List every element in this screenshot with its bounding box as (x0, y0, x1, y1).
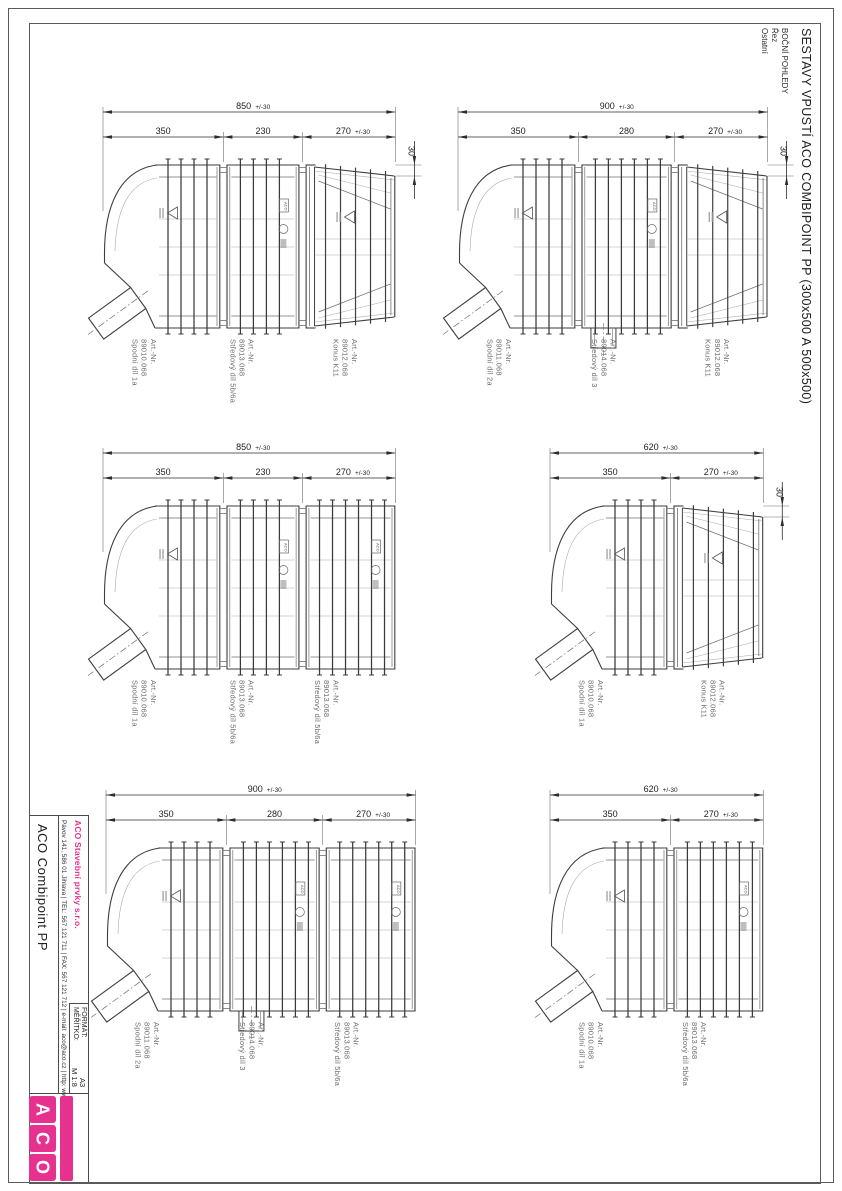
part-name: Středový díl 5b/6a (313, 680, 322, 815)
dimension-tolerance: +/-30 (619, 104, 634, 111)
dim-arrow (759, 135, 768, 138)
aco-mark-text: ACO (744, 885, 749, 894)
assembly-1-drawing: 850+/-30350230270+/-30ACO30 (73, 95, 429, 351)
assembly-5-drawing: 900+/-30350280270+/-30ACOACO (76, 778, 450, 1034)
product-title: ACO Combipoint PP (35, 824, 50, 951)
part-label: Art.-Nr.89010.068Spodní díl 1a (577, 680, 605, 815)
dim-arrow (458, 110, 467, 113)
dim-arrow (214, 135, 223, 138)
part-name: Spodní díl 1a (130, 680, 139, 815)
dimension-value: 350 (156, 126, 171, 136)
art-nr-caption: Art.-Nr. (722, 339, 731, 474)
quality-mark-icon (371, 566, 380, 575)
dimension-tolerance: +/-30 (255, 104, 270, 111)
step-dimension-value: 30 (779, 146, 789, 156)
microtext-bar (336, 212, 337, 222)
art-nr-caption: Art.-Nr. (596, 680, 605, 815)
view-labels: BOČNÍ POHLEDY Řez Ostatní (759, 28, 789, 94)
step-dimension-value: 30 (774, 487, 784, 497)
art-nr-value: 89010.068 (586, 680, 595, 815)
dim-arrow (226, 818, 235, 821)
company-name: ACO Stavební prvky s.r.o. (73, 820, 83, 929)
dim-arrow (386, 110, 395, 113)
dim-arrow (303, 135, 312, 138)
dim-arrow (314, 818, 323, 821)
dim-arrow (781, 497, 784, 506)
microtext-bar (162, 208, 163, 218)
part-name: Středový díl 5b/6a (681, 1022, 690, 1157)
dim-arrow (670, 476, 679, 479)
art-nr-caption: Art.-Nr. (246, 339, 255, 474)
part-label: Art.-Nr.89013.068Středový díl 5b/6a (313, 680, 341, 815)
aco-mark-text: ACO (283, 543, 288, 552)
dim-arrow (103, 135, 112, 138)
dim-arrow (413, 156, 416, 165)
dim-arrow (661, 818, 670, 821)
art-nr-caption: Art.-Nr. (331, 680, 340, 815)
art-nr-value: 89014.068 (247, 1022, 256, 1157)
microtext-bar (514, 208, 515, 218)
dim-arrow (754, 451, 763, 454)
dim-arrow (217, 818, 226, 821)
microtext-bar (165, 891, 166, 901)
art-nr-value: 89014.068 (599, 339, 608, 474)
dim-arrow (223, 476, 232, 479)
dimension-value: 350 (511, 126, 526, 136)
recycling-triangle-icon (167, 548, 177, 560)
part-label: Art.-Nr.89013.068Středový díl 5b/6a (681, 1022, 709, 1157)
dim-arrow (407, 818, 416, 821)
art-nr-caption: Art.-Nr. (699, 1022, 708, 1157)
scale-cell: MĚŘÍTKO: M 1:8 (70, 1007, 79, 1087)
dim-arrow (754, 793, 763, 796)
dimension-value: 620 (644, 442, 659, 452)
dim-arrow (550, 476, 559, 479)
art-nr-caption: Art.-Nr. (596, 1022, 605, 1157)
art-nr-caption: Art.-Nr. (149, 680, 158, 815)
aco-logo-letter: O (34, 1160, 52, 1174)
quality-mark-icon (279, 566, 288, 575)
aco-logo-block: A (29, 1096, 56, 1123)
microtext-bar (704, 553, 705, 563)
microtext-bar (159, 208, 160, 218)
dim-arrow (103, 476, 112, 479)
code-mark (280, 239, 286, 248)
aco-mark-text: ACO (300, 885, 305, 894)
dimension-tolerance: +/-30 (255, 445, 270, 452)
art-nr-value: 89013.068 (237, 339, 246, 474)
outlet-stub (92, 971, 149, 1023)
format-value: A3 (78, 1078, 87, 1087)
art-nr-value: 89013.068 (342, 1022, 351, 1157)
dim-arrow (386, 476, 395, 479)
part-label: Art.-Nr.89010.068Spodní díl 1a (130, 339, 158, 474)
assembly-2-drawing: 900+/-30350280270+/-30ACO30 (428, 95, 802, 351)
aco-mark-text: ACO (283, 202, 288, 211)
dim-arrow (578, 135, 587, 138)
recycling-triangle-icon (712, 552, 722, 564)
format-label: FORMÁT: (78, 1007, 87, 1038)
part-name: Spodní díl 1a (130, 339, 139, 474)
aco-logo-block: O (29, 1154, 56, 1181)
dimension-value: 900 (600, 101, 615, 111)
part-name: Spodní díl 1a (577, 680, 586, 815)
art-nr-value: 89012.068 (340, 339, 349, 474)
recycling-triangle-icon (614, 890, 624, 902)
part-name: Středový díl 5b/6a (333, 1022, 342, 1157)
view-label-other: Ostatní (759, 28, 769, 94)
dim-arrow (759, 110, 768, 113)
dim-arrow (323, 818, 332, 821)
dimension-value: 230 (255, 126, 270, 136)
outlet-stub (536, 629, 593, 681)
art-nr-value: 89011.068 (494, 339, 503, 474)
part-label: Art.-Nr.89013.068Středový díl 5b/6a (333, 1022, 361, 1157)
aco-mark-text: ACO (376, 543, 381, 552)
art-nr-value: 89013.068 (322, 680, 331, 815)
dim-arrow (785, 176, 788, 185)
art-nr-caption: Art.-Nr. (350, 339, 359, 474)
dimension-value: 270 (336, 126, 351, 136)
assembly-6-drawing: 620+/-30350270+/-30ACO (520, 778, 797, 1034)
microtext-bar (707, 553, 708, 563)
recycling-triangle-icon (522, 207, 532, 219)
part-name: Středový díl 3 (590, 339, 599, 474)
art-nr-caption: Art.-Nr. (149, 339, 158, 474)
aco-mark-text: ACO (652, 202, 657, 211)
dimension-value: 350 (159, 809, 174, 819)
microtext-bar (162, 891, 163, 901)
quality-mark-icon (647, 225, 656, 234)
part-name: Středový díl 5b/6a (228, 339, 237, 474)
art-nr-value: 89012.068 (713, 339, 722, 474)
part-label: Art.-Nr.89013.068Středový díl 5b/6a (228, 339, 256, 474)
dim-arrow (754, 476, 763, 479)
microtext-bar (339, 212, 340, 222)
dim-arrow (106, 818, 115, 821)
art-nr-value: 89013.068 (237, 680, 246, 815)
part-name: Konus K11 (699, 680, 708, 815)
recycling-triangle-icon (344, 211, 354, 223)
dim-arrow (294, 476, 303, 479)
part-label: Art.-Nr.89011.068Spodní díl 2a (133, 1022, 161, 1157)
company-address: Pávov 141, 586 01 Jihlava | TEL: 567 121… (60, 820, 67, 1122)
part-name: Spodní díl 1a (577, 1022, 586, 1157)
quality-mark-icon (279, 225, 288, 234)
code-mark (393, 922, 399, 931)
code-mark (373, 580, 379, 589)
art-nr-caption: Art.-Nr. (504, 339, 513, 474)
outlet-stub (89, 629, 146, 681)
quality-mark-icon (295, 908, 304, 917)
part-label: Art.-Nr.89010.068Spodní díl 1a (130, 680, 158, 815)
microtext-bar (709, 212, 710, 222)
recycling-triangle-icon (170, 890, 180, 902)
dim-arrow (103, 110, 112, 113)
dimension-value: 850 (236, 101, 251, 111)
art-nr-value: 89010.068 (586, 1022, 595, 1157)
dim-arrow (785, 156, 788, 165)
microtext-bar (609, 549, 610, 559)
outlet-stub (89, 288, 146, 340)
dimension-tolerance: +/-30 (355, 129, 370, 136)
title-block-border (29, 1093, 88, 1094)
scale-value: M 1:8 (70, 1068, 79, 1087)
view-label-section: Řez (769, 28, 779, 94)
dim-arrow (106, 793, 115, 796)
dimension-tolerance: +/-30 (375, 812, 390, 819)
dimension-value: 350 (603, 809, 618, 819)
art-nr-caption: Art.-Nr. (256, 1022, 265, 1157)
aco-mark-text: ACO (396, 885, 401, 894)
part-label: Art.-Nr.89012.068Konus K11 (699, 680, 727, 815)
dimension-value: 280 (619, 126, 634, 136)
dimension-value: 270 (356, 809, 371, 819)
dim-arrow (303, 476, 312, 479)
aco-logo-letter: C (34, 1132, 52, 1145)
aco-logo-block: C (29, 1125, 56, 1152)
title-block-border (69, 1003, 88, 1004)
dim-arrow (661, 476, 670, 479)
microtext-bar (712, 212, 713, 222)
recycling-triangle-icon (614, 548, 624, 560)
quality-mark-icon (739, 908, 748, 917)
dim-arrow (670, 818, 679, 821)
part-label: Art.-Nr.89012.068Konus K11 (703, 339, 731, 474)
art-nr-caption: Art.-Nr. (718, 680, 727, 815)
code-mark (280, 580, 286, 589)
dimension-tolerance: +/-30 (267, 787, 282, 794)
art-nr-caption: Art.-Nr. (608, 339, 617, 474)
recycling-triangle-icon (167, 207, 177, 219)
dim-arrow (550, 793, 559, 796)
format-cell: FORMÁT: A3 (78, 1007, 87, 1087)
dim-arrow (223, 135, 232, 138)
part-name: Konus K11 (331, 339, 340, 474)
view-label-side: BOČNÍ POHLEDY (779, 28, 789, 94)
part-name: Středový díl 5b/6a (228, 680, 237, 815)
art-nr-caption: Art.-Nr. (246, 680, 255, 815)
dim-arrow (569, 135, 578, 138)
art-nr-value: 89012.068 (708, 680, 717, 815)
art-nr-caption: Art.-Nr. (351, 1022, 360, 1157)
microtext-bar (159, 549, 160, 559)
code-mark (297, 922, 303, 931)
art-nr-value: 89011.068 (142, 1022, 151, 1157)
part-label: Art.-Nr.89011.068Spodní díl 2a (485, 339, 513, 474)
dim-arrow (413, 176, 416, 185)
dimension-value: 350 (156, 467, 171, 477)
part-name: Konus K11 (703, 339, 712, 474)
dimension-tolerance: +/-30 (663, 445, 678, 452)
part-name: Středový díl 3 (238, 1022, 247, 1157)
dim-arrow (550, 818, 559, 821)
part-name: Spodní díl 2a (133, 1022, 142, 1157)
dim-arrow (754, 818, 763, 821)
part-label: Art.-Nr.89014.068Středový díl 3 (238, 1022, 266, 1157)
code-mark (649, 239, 655, 248)
microtext-bar (517, 208, 518, 218)
dim-arrow (550, 451, 559, 454)
recycling-triangle-icon (717, 211, 727, 223)
drawing-sheet: SESTAVY VPUSTÍ ACO COMBIPOINT PP (300x50… (0, 0, 842, 1191)
microtext-bar (609, 891, 610, 901)
microtext-bar (606, 891, 607, 901)
dimension-value: 620 (644, 784, 659, 794)
dim-arrow (103, 451, 112, 454)
title-block-border (58, 815, 59, 1093)
aco-logo-letter: A (34, 1103, 52, 1116)
dim-arrow (407, 793, 416, 796)
dimension-tolerance: +/-30 (663, 787, 678, 794)
scale-label: MĚŘÍTKO: (70, 1007, 79, 1041)
dimension-value: 280 (267, 809, 282, 819)
dim-arrow (458, 135, 467, 138)
dim-arrow (666, 135, 675, 138)
art-nr-value: 89010.068 (139, 680, 148, 815)
outlet-stub (536, 971, 593, 1023)
assembly-3-drawing: 850+/-30350230270+/-30ACOACO (73, 436, 429, 692)
dim-arrow (781, 517, 784, 526)
part-label: Art.-Nr.89010.068Spodní díl 1a (577, 1022, 605, 1157)
dimension-value: 270 (708, 126, 723, 136)
step-dimension-value: 30 (406, 146, 416, 156)
dim-arrow (386, 451, 395, 454)
part-label: Art.-Nr.89014.068Středový díl 3 (590, 339, 618, 474)
assembly-4-drawing: 620+/-30350270+/-3030 (520, 436, 797, 692)
dim-arrow (675, 135, 684, 138)
art-nr-value: 89013.068 (690, 1022, 699, 1157)
microtext-bar (162, 549, 163, 559)
part-name: Spodní díl 2a (485, 339, 494, 474)
aco-logo-bar (60, 1096, 73, 1181)
dim-arrow (294, 135, 303, 138)
dim-arrow (386, 135, 395, 138)
outlet-stub (444, 288, 501, 340)
microtext-bar (606, 549, 607, 559)
quality-mark-icon (391, 908, 400, 917)
art-nr-caption: Art.-Nr. (152, 1022, 161, 1157)
dimension-value: 230 (255, 467, 270, 477)
dimension-tolerance: +/-30 (727, 129, 742, 136)
dim-arrow (214, 476, 223, 479)
art-nr-value: 89010.068 (139, 339, 148, 474)
part-label: Art.-Nr.89012.068Konus K11 (331, 339, 359, 474)
part-label: Art.-Nr.89013.068Středový díl 5b/6a (228, 680, 256, 815)
title-block-border (88, 815, 89, 1182)
code-mark (741, 922, 747, 931)
